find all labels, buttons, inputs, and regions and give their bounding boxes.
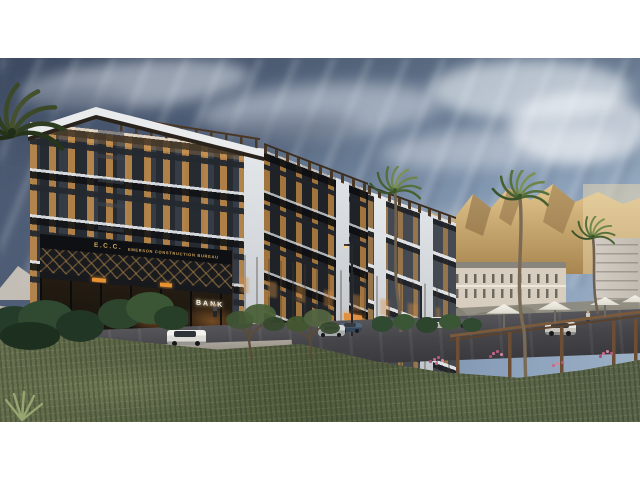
palm-trunk bbox=[519, 198, 527, 392]
flower-accent bbox=[556, 362, 559, 365]
architectural-photo: E.C.C. EMERSON CONSTRUCTION BUREAU BANK … bbox=[0, 58, 640, 422]
flower-accent bbox=[602, 352, 605, 355]
olive-tree bbox=[282, 296, 346, 362]
ecc-logo: E.C.C. bbox=[94, 242, 122, 251]
agave-plant bbox=[0, 390, 46, 422]
palm-trunk bbox=[593, 238, 598, 314]
letterboxed-canvas: E.C.C. EMERSON CONSTRUCTION BUREAU BANK … bbox=[0, 0, 640, 480]
roadside-shrub-row bbox=[372, 304, 482, 338]
bush-cluster-left bbox=[0, 284, 106, 350]
cloud bbox=[510, 92, 640, 164]
pedestrian bbox=[213, 304, 217, 317]
flower-accent bbox=[492, 352, 495, 355]
lamp-light bbox=[344, 246, 347, 248]
palm-tree-right-small bbox=[560, 216, 640, 328]
flower-accent bbox=[433, 358, 436, 361]
palm-fronds-corner bbox=[0, 74, 116, 214]
bush-cluster-mid bbox=[96, 280, 188, 342]
